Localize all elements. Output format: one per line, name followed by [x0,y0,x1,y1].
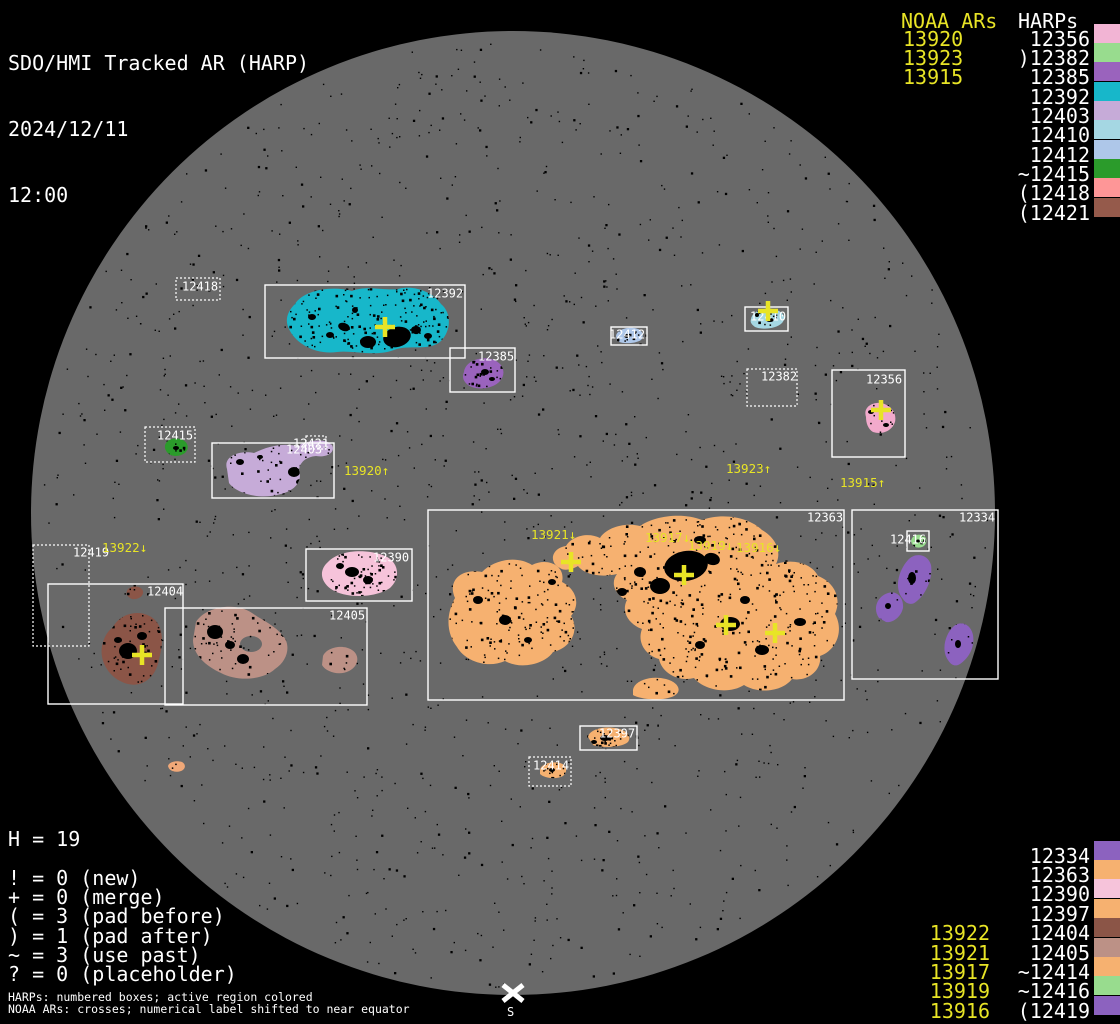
harp-color-swatch-12412 [1094,140,1120,159]
observation-date: 2024/12/11 [8,118,309,140]
observation-time: 12:00 [8,184,309,206]
harp-color-swatch-12382 [1094,43,1120,62]
harp-box-label-12397: 12397 [599,727,635,741]
noaa-disk-label: 13919↓ [688,538,733,553]
harp-number: (12419 [950,999,1090,1023]
noaa-disk-label: 13922↓ [102,540,147,555]
harp-box-label-12404: 12404 [147,585,183,599]
harp-box-label-12385: 12385 [478,350,514,364]
page-title: SDO/HMI Tracked AR (HARP) [8,52,309,74]
harp-color-swatch-12404 [1094,918,1120,937]
harp-box-label-12414: 12414 [533,759,569,773]
harp-box-label-12334: 12334 [959,511,995,525]
harp-color-swatch-12392 [1094,82,1120,101]
harp-color-swatch-12416 [1094,976,1120,995]
harp-color-swatch-12403 [1094,101,1120,120]
harp-color-swatch-12334 [1094,841,1120,860]
harp-box-label-12418: 12418 [182,280,218,294]
harp-color-swatch-12410 [1094,120,1120,139]
harp-color-swatch-12421 [1094,198,1120,217]
noaa-disk-label: 13915↑ [840,475,885,490]
footnote-noaa: NOAA ARs: crosses; numerical label shift… [8,1002,410,1016]
harp-box-label-12412: 12412 [609,328,645,342]
harp-number: (12421 [950,201,1090,225]
active-region-12392 [287,288,451,356]
noaa-disk-label: 13923↑ [726,461,771,476]
harp-box-label-12416: 12416 [890,533,926,547]
harp-box-label-12421: 12421 [293,437,329,451]
harp-box-label-12356: 12356 [866,373,902,387]
harp-box-label-12363: 12363 [807,511,843,525]
harp-box-label-12392: 12392 [427,287,463,301]
harp-color-swatch-12419 [1094,996,1120,1015]
stat-line: ? = 0 (placeholder) [8,962,237,986]
noaa-disk-label: 13920↑ [344,463,389,478]
harp-color-swatch-12385 [1094,62,1120,81]
harp-color-swatch-12397 [1094,899,1120,918]
harp-box-label-12405: 12405 [329,609,365,623]
harp-box-label-12390: 12390 [373,551,409,565]
south-pole-label: S [507,1005,514,1019]
harp-color-swatch-12418 [1094,178,1120,197]
harp-color-swatch-12390 [1094,879,1120,898]
harp-color-swatch-12356 [1094,24,1120,43]
harp-color-swatch-12405 [1094,938,1120,957]
noaa-disk-label: 13917↓ [645,530,690,545]
title-block: SDO/HMI Tracked AR (HARP) 2024/12/11 12:… [8,8,309,250]
harp-box-label-12415: 12415 [157,429,193,443]
harp-count: H = 19 [8,827,80,851]
harp-color-swatch-12363 [1094,860,1120,879]
sdo-hmi-harp-viewer: 1241812392123851241512403124211241912404… [0,0,1120,1024]
harp-color-swatch-12414 [1094,957,1120,976]
noaa-disk-label: 13921↓ [531,527,576,542]
harp-color-swatch-12415 [1094,159,1120,178]
harp-box-label-12382: 12382 [761,370,797,384]
noaa-disk-label: 13916↓ [736,540,781,555]
